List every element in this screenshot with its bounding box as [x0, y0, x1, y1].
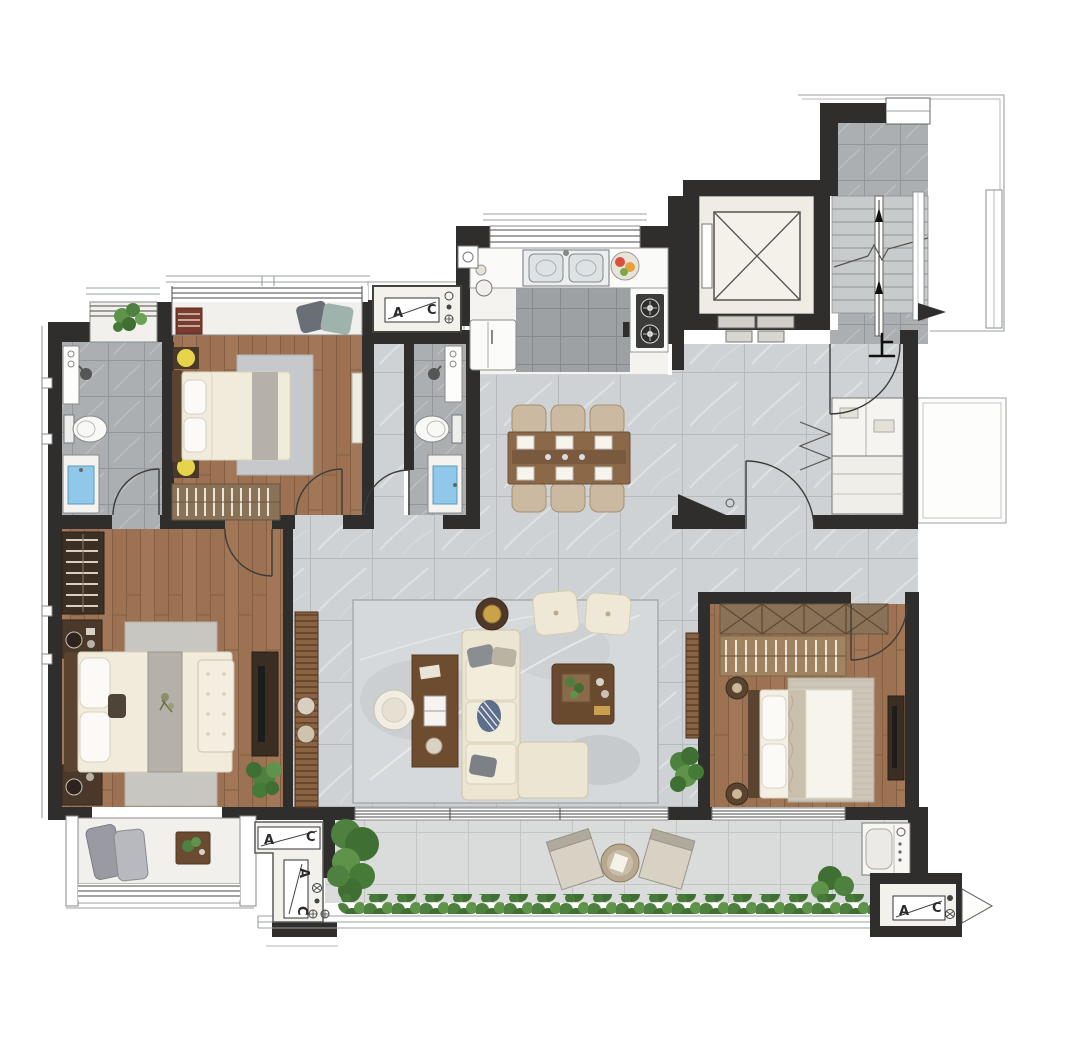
exterior-bay: [918, 398, 1006, 523]
bed-headboard: [64, 652, 78, 772]
bath-cabinet: [445, 346, 462, 402]
wall-segment: [668, 196, 683, 344]
entry-bench-cabinet: [832, 456, 903, 514]
lamp-icon: [177, 349, 195, 367]
pillow: [762, 696, 786, 740]
fruit-plate: [611, 252, 639, 280]
tv-icon: [892, 706, 897, 768]
ac-letter-c: C: [932, 901, 942, 916]
pot-icon: [476, 280, 492, 296]
wall-segment: [672, 330, 684, 370]
drain-icon: [447, 305, 452, 310]
bedroom-2-window: [712, 808, 845, 820]
ac-letter-a: A: [296, 868, 311, 878]
wall-segment: [908, 807, 928, 875]
tray-icon: [66, 632, 82, 648]
ac-platform-southwest: A C A C: [255, 822, 329, 922]
coffee-table: [552, 664, 614, 724]
drain-icon: [947, 895, 953, 901]
ac-platform-southeast: A C: [870, 873, 992, 937]
wall-segment: [845, 807, 908, 820]
faucet-icon: [453, 483, 457, 487]
bay-window-tray: [176, 832, 210, 864]
wall-segment: [814, 180, 830, 330]
book-stack: [176, 308, 202, 334]
corridor-floor: [374, 344, 404, 529]
ac-letter-a: A: [264, 833, 274, 848]
toilet: [73, 416, 107, 442]
refrigerator: [470, 320, 516, 370]
wall-ledge: [352, 373, 362, 443]
faucet-icon: [79, 468, 83, 472]
floor-plan-svg: A C A C A C A C: [0, 0, 1080, 1054]
ac-letter-c: C: [294, 906, 309, 916]
wall-segment: [48, 322, 90, 342]
tv-icon: [258, 666, 265, 742]
pillow: [80, 712, 110, 762]
pillow: [184, 418, 206, 452]
wall-segment: [283, 529, 293, 807]
toilet-tank: [452, 415, 462, 443]
table-runner: [512, 450, 626, 464]
bed-runner: [252, 372, 278, 460]
bay-window-pillows: [85, 823, 149, 881]
direction-flag: [962, 889, 992, 923]
bed-bench: [198, 660, 234, 752]
wall-segment: [48, 342, 62, 818]
faucet-icon: [563, 250, 569, 256]
accent-pillow: [108, 694, 126, 718]
wall-segment: [48, 515, 112, 529]
toilet: [415, 416, 449, 442]
wall-segment: [272, 922, 337, 937]
wall-segment: [699, 180, 830, 196]
ac-platform-north: A C: [373, 286, 461, 332]
kitchen-window: [490, 226, 640, 248]
stair-exit-arrow-icon: [918, 303, 946, 321]
slat-screen: [686, 633, 699, 738]
pillow: [184, 380, 206, 414]
wall-segment: [443, 515, 480, 529]
bed-runner: [148, 652, 182, 772]
kitchen-tile: [516, 288, 630, 372]
wall-segment: [668, 807, 712, 820]
tray-icon: [66, 779, 82, 795]
wall-segment: [813, 515, 918, 529]
ac-letter-c: C: [306, 830, 316, 845]
sofa-chaise: [518, 742, 588, 798]
wall-segment: [157, 302, 173, 342]
wall-segment: [838, 103, 886, 123]
throw-pillow: [491, 646, 517, 667]
balcony-railing: [258, 916, 940, 928]
wall-segment: [905, 592, 919, 810]
stove: [636, 294, 664, 348]
decor-plate-icon: [297, 697, 315, 715]
bed-headboard: [748, 690, 760, 798]
hedge: [338, 894, 898, 914]
wall-segment: [470, 226, 490, 248]
living-room: [295, 590, 704, 808]
ac-letter-c: C: [427, 303, 437, 318]
dining-set: [508, 405, 630, 512]
ac-letter-a: A: [393, 306, 403, 321]
drain-icon: [315, 899, 320, 904]
wall-segment: [343, 515, 374, 529]
wall-segment: [820, 103, 838, 196]
bed-duvet: [806, 690, 852, 798]
wall-segment: [903, 344, 918, 515]
wall-segment: [683, 180, 699, 330]
elevator: [699, 196, 814, 314]
desk-decor: [426, 738, 442, 754]
washing-machine: [862, 823, 910, 875]
bath-cabinet: [63, 346, 79, 404]
pillow: [80, 658, 110, 708]
gold-tray: [483, 605, 501, 623]
stair-landing-floor: [832, 123, 928, 196]
floor-plan-canvas: A C A C A C A C: [0, 0, 1080, 1054]
decor-plate-icon: [297, 725, 315, 743]
ac-letter-a: A: [899, 904, 909, 919]
living-sliding-door: [355, 808, 668, 820]
pillow: [762, 744, 786, 788]
elevator-counterweight: [702, 224, 712, 288]
wall-segment: [900, 330, 918, 344]
bed-headboard: [172, 370, 182, 462]
water-heater: [458, 246, 478, 268]
wall-segment: [698, 592, 851, 604]
wall-segment: [672, 515, 745, 529]
wall-segment: [404, 344, 414, 470]
